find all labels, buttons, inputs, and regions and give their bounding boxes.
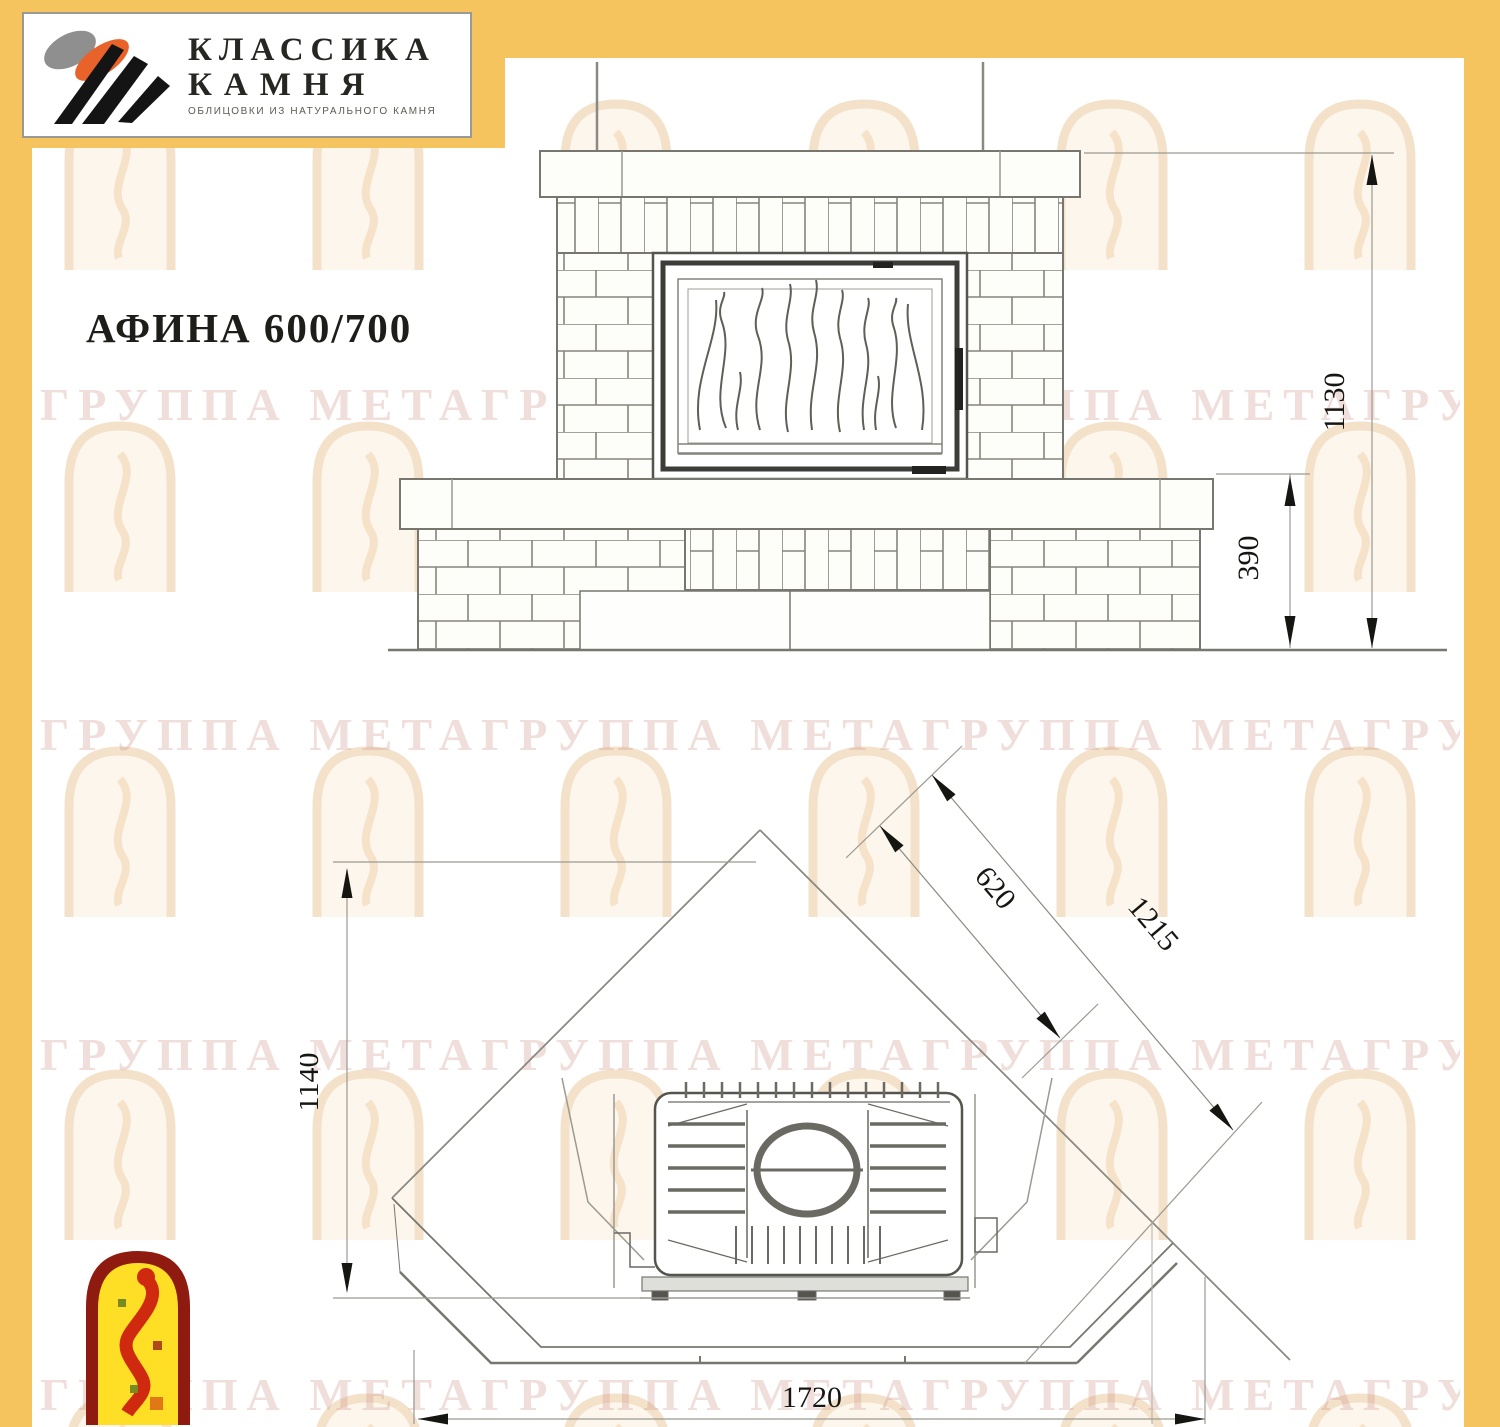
front-elevation-drawing: 1130 390 (380, 40, 1470, 665)
mantel-shelf (540, 151, 1080, 197)
brand-name-line2: КАМНЯ (188, 69, 436, 102)
firebox-insert-plan (562, 1078, 1052, 1300)
soldier-brick-band (557, 197, 1063, 253)
base-masonry (418, 529, 1200, 650)
dimension-diagonals: 620 1215 (846, 746, 1262, 1424)
dim-label-390: 390 (1232, 536, 1265, 581)
frame-left (0, 0, 32, 1427)
dim-label-1720: 1720 (782, 1381, 842, 1414)
frame-right (1464, 0, 1500, 1427)
firebox-top-latch (873, 262, 893, 268)
left-cheek (562, 1078, 644, 1260)
model-title: АФИНА 600/700 (86, 304, 412, 352)
hearth-shelf (400, 479, 1213, 529)
brand-logo: КЛАССИКА КАМНЯ ОБЛИЦОВКИ ИЗ НАТУРАЛЬНОГО… (22, 12, 472, 138)
dim-label-620: 620 (968, 860, 1022, 916)
right-brick-pillar (967, 253, 1063, 479)
brand-name-line1: КЛАССИКА (188, 34, 436, 67)
dim-label-1215: 1215 (1121, 890, 1185, 957)
page: ГРУППА МЕТАГРУППА МЕТАГРУППА МЕТАГРУППА … (0, 0, 1500, 1427)
stone-logo-icon (32, 22, 182, 128)
right-step (975, 1218, 997, 1252)
right-cheek (971, 1078, 1052, 1260)
firebox (653, 253, 967, 479)
brand-subtitle: ОБЛИЦОВКИ ИЗ НАТУРАЛЬНОГО КАМНЯ (188, 107, 436, 117)
firebox-badge (912, 466, 946, 474)
dimension-base-height: 390 (1216, 474, 1310, 648)
dim-label-1140: 1140 (300, 1053, 325, 1112)
dim-label-1130: 1130 (1318, 373, 1351, 432)
metagroup-emblem-icon (82, 1247, 194, 1425)
plan-view-drawing: 1140 620 1215 1720 (300, 738, 1485, 1427)
firebox-handle (955, 348, 963, 410)
chimney-lines (597, 62, 983, 151)
left-brick-pillar (557, 253, 653, 479)
front-bar (642, 1277, 968, 1291)
